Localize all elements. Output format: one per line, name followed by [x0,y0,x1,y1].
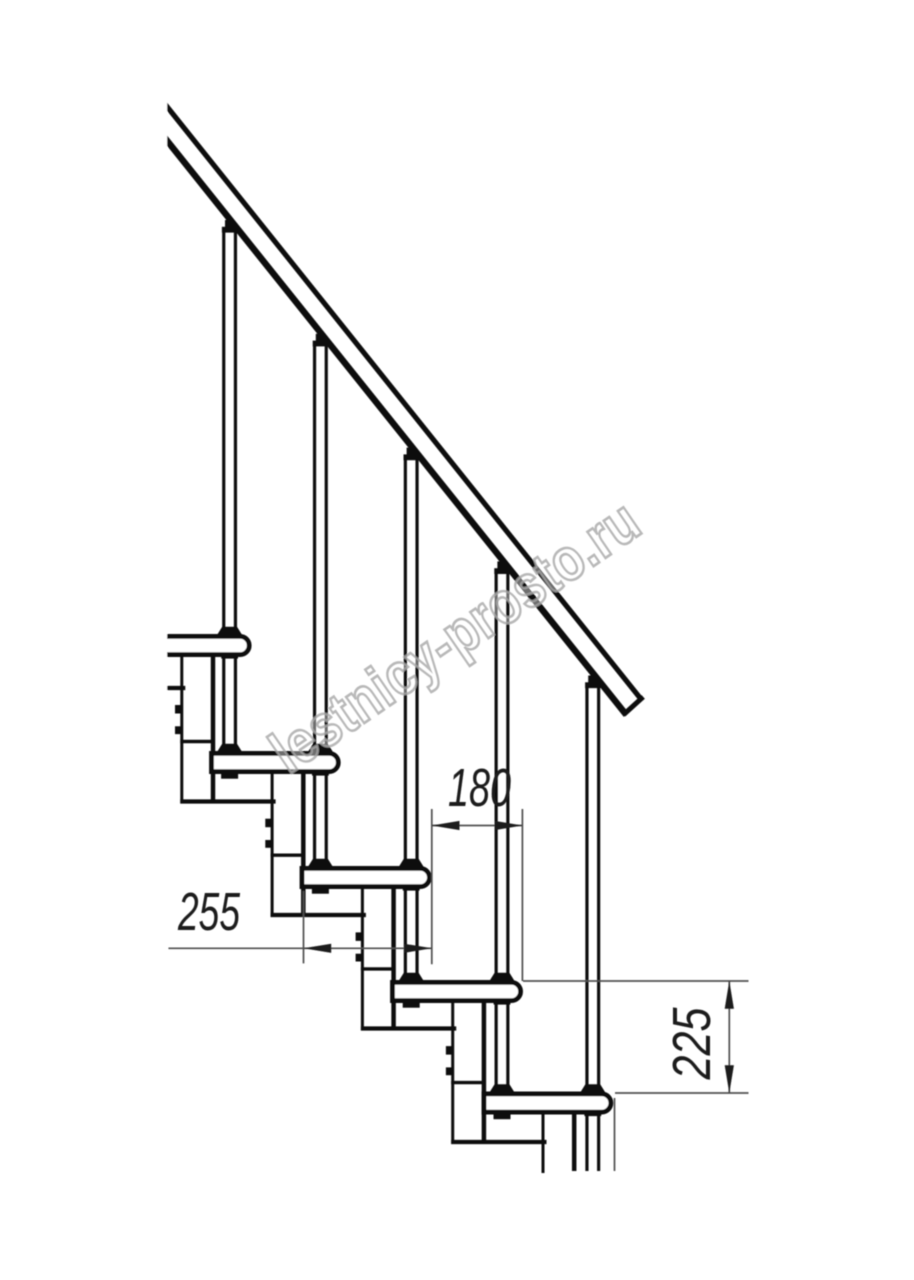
svg-text:255: 255 [177,882,240,942]
svg-text:180: 180 [448,758,511,818]
svg-text:225: 225 [662,1007,722,1081]
